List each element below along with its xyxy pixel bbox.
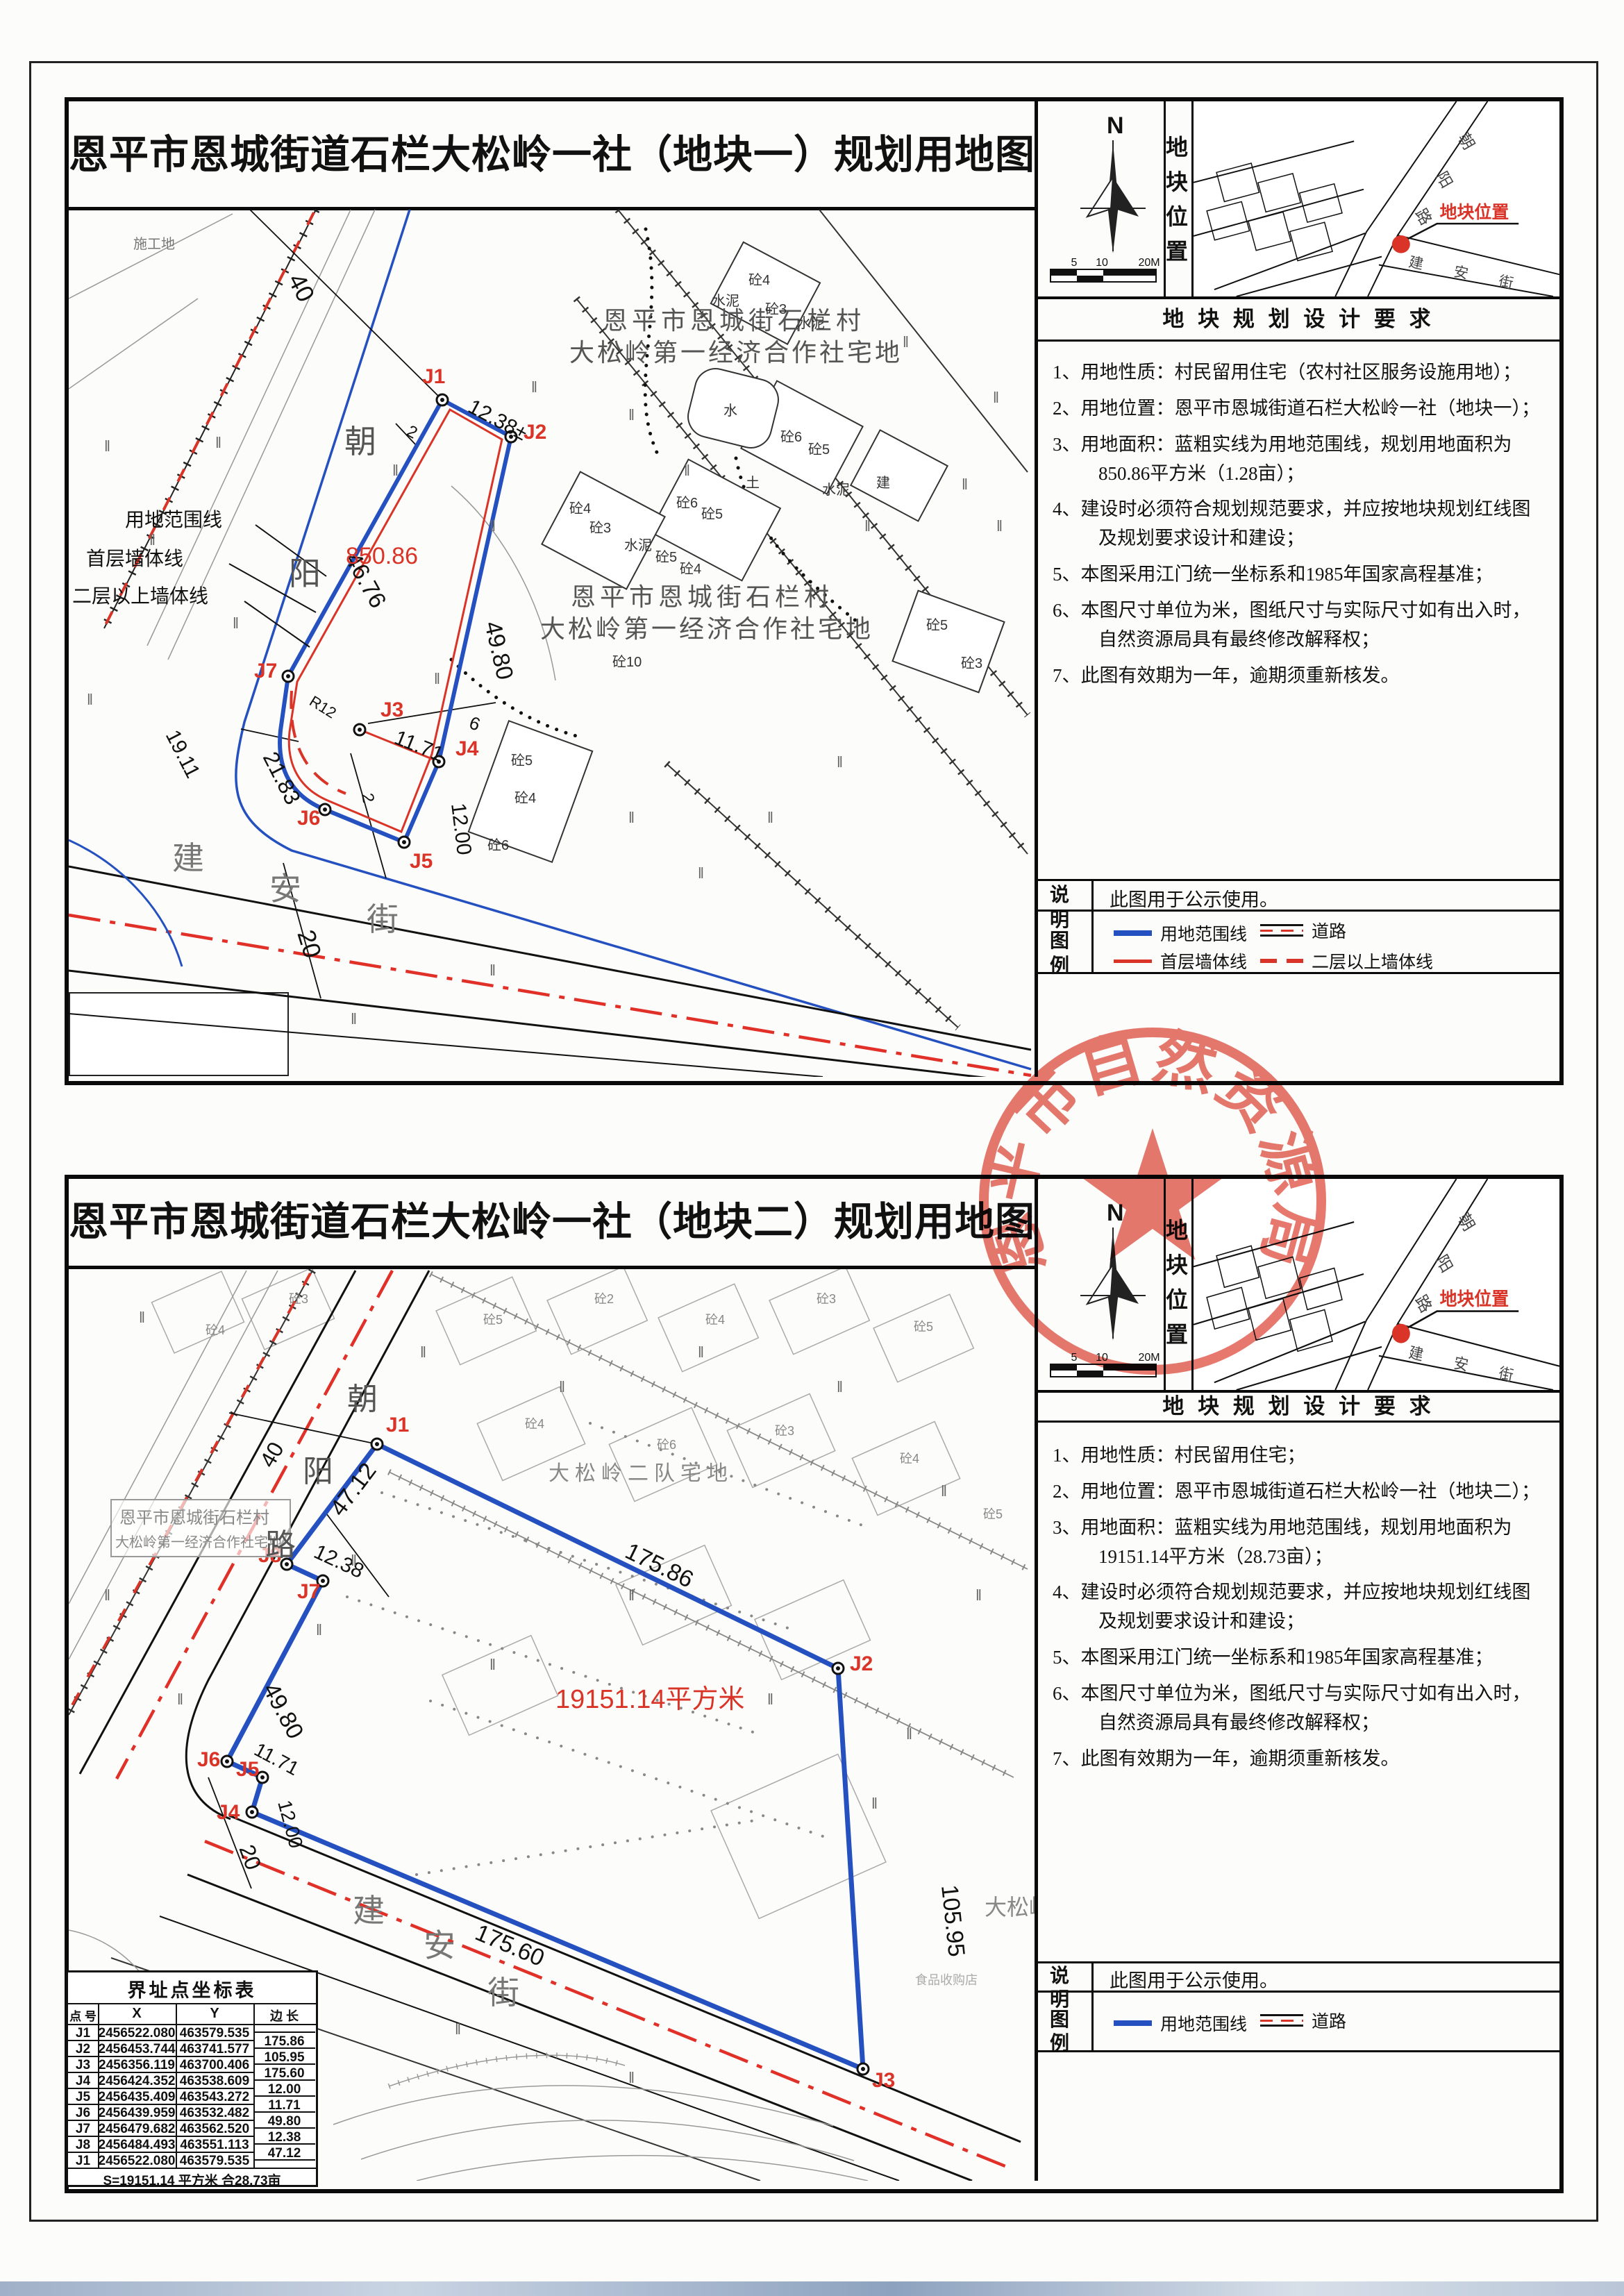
panel1-map: J1 J2 J3 J4 J5 J6 J7 12.38± 46.76 49.80 … — [69, 210, 1035, 1077]
panel2-label-cell-divider — [1091, 1961, 1094, 2052]
svg-text:砼3: 砼3 — [775, 1424, 794, 1438]
svg-text:‖: ‖ — [628, 406, 635, 424]
svg-text:‖: ‖ — [628, 809, 635, 826]
inset-site-label: 地块位置 — [1440, 1288, 1509, 1309]
svg-text:‖: ‖ — [149, 531, 156, 548]
svg-text:J5: J5 — [410, 850, 433, 873]
svg-text:6: 6 — [467, 712, 483, 735]
svg-text:105.95: 105.95 — [936, 1884, 970, 1958]
table-cell: 463579.535 — [176, 2026, 253, 2041]
panel1-inset-map: 地块位置 朝 阳 路 建 安 街 — [1194, 101, 1559, 296]
table-cell: 463543.272 — [176, 2090, 253, 2105]
scale-tick-10: 10 — [1096, 257, 1108, 269]
svg-text:49.80: 49.80 — [479, 619, 518, 682]
table-cell: J1 — [68, 2154, 98, 2169]
svg-text:‖: ‖ — [531, 378, 537, 396]
svg-text:‖: ‖ — [489, 1656, 496, 1673]
svg-text:砼6: 砼6 — [676, 495, 698, 511]
panel2-req-header: 地 块 规 划 设 计 要 求 — [1038, 1393, 1559, 1421]
svg-text:19.11: 19.11 — [161, 726, 204, 782]
svg-text:街: 街 — [487, 1975, 519, 2011]
svg-text:J2: J2 — [850, 1652, 873, 1675]
svg-text:砼2: 砼2 — [594, 1292, 614, 1306]
req-item: 1、用地性质：村民留用住宅； — [1053, 1441, 1548, 1470]
svg-text:大松岭二队宅地: 大松岭二队宅地 — [549, 1462, 733, 1485]
svg-text:J6: J6 — [297, 807, 320, 830]
svg-text:‖: ‖ — [489, 517, 496, 535]
svg-text:‖: ‖ — [434, 670, 440, 687]
svg-text:‖: ‖ — [767, 809, 773, 826]
panel2-legend-bottom-line — [1038, 2050, 1559, 2052]
req-item: 6、本图尺寸单位为米，图纸尺寸与实际尺寸如有出入时，自然资源局具有最终修改解释权… — [1053, 596, 1548, 655]
svg-text:砼4: 砼4 — [206, 1323, 225, 1337]
svg-text:‖: ‖ — [628, 2069, 635, 2086]
svg-text:‖: ‖ — [767, 1691, 773, 1708]
village-box: 恩平市恩城街石栏村 大松岭第一经济合作社宅地 — [111, 1500, 290, 1557]
svg-text:砼4: 砼4 — [705, 1313, 725, 1327]
svg-text:水: 水 — [723, 403, 737, 419]
svg-text:‖: ‖ — [976, 1586, 982, 1604]
svg-text:‖: ‖ — [87, 691, 93, 708]
panel1-scalebar: 5 10 20M — [1045, 255, 1163, 287]
svg-text:‖: ‖ — [177, 1691, 183, 1708]
table-cell: 463538.609 — [176, 2074, 253, 2089]
svg-text:土: 土 — [746, 475, 760, 491]
svg-text:11.71: 11.71 — [391, 726, 446, 766]
svg-text:砼6: 砼6 — [657, 1438, 676, 1452]
svg-text:恩平市恩城街石栏村: 恩平市恩城街石栏村 — [119, 1509, 269, 1527]
table-cell: 463562.520 — [176, 2122, 253, 2137]
svg-text:砼4: 砼4 — [569, 501, 591, 517]
svg-text:‖: ‖ — [941, 1482, 947, 1500]
svg-text:‖: ‖ — [104, 1586, 110, 1604]
svg-text:砼4: 砼4 — [680, 561, 701, 577]
plot2-point-markers — [221, 1439, 869, 2075]
table-cell: J2 — [68, 2042, 98, 2057]
svg-text:大松岭: 大松岭 — [985, 1895, 1035, 1920]
svg-text:砼4: 砼4 — [900, 1452, 919, 1466]
svg-text:J1: J1 — [422, 365, 445, 388]
table-header-y: Y — [176, 2006, 253, 2022]
panel1-compass: N — [1061, 111, 1165, 257]
legend-red-dash-icon — [1260, 959, 1303, 963]
svg-text:朝: 朝 — [344, 424, 376, 460]
svg-text:安: 安 — [424, 1927, 455, 1963]
svg-text:砼5: 砼5 — [983, 1507, 1003, 1521]
legend-item-label: 道路 — [1312, 2008, 1346, 2033]
legend-item-upperwall: 二层以上墙体线 — [1260, 948, 1433, 973]
legend-item-firstfloor: 首层墙体线 — [1114, 948, 1247, 973]
panel1-notes-top-line — [1038, 879, 1559, 881]
table-cell: 2456356.119 — [98, 2058, 176, 2073]
req-item: 2、用地位置：恩平市恩城街道石栏大松岭一社（地块一）； — [1053, 394, 1548, 424]
req-item: 4、建设时必须符合规划规范要求，并应按地块规划红线图及规划要求设计和建设； — [1053, 1578, 1548, 1636]
north-letter: N — [1107, 112, 1124, 139]
svg-text:砼5: 砼5 — [914, 1320, 933, 1334]
svg-text:40: 40 — [255, 1438, 289, 1472]
panel2-reqhdr-bottom-line — [1038, 1421, 1559, 1423]
svg-text:J4: J4 — [455, 737, 479, 760]
legend-item-boundary: 用地范围线 — [1114, 921, 1247, 946]
svg-text:J4: J4 — [217, 1801, 240, 1824]
svg-text:二层以上墙体线: 二层以上墙体线 — [72, 585, 208, 607]
svg-text:用地范围线: 用地范围线 — [125, 509, 222, 530]
panel2-notes-text: 此图用于公示使用。 — [1110, 1966, 1540, 1993]
svg-text:恩平市恩城街石栏村: 恩平市恩城街石栏村 — [603, 306, 865, 335]
svg-text:J7: J7 — [254, 660, 277, 682]
table-cell: 2456522.080 — [98, 2026, 176, 2041]
official-seal: 恩平市自然资源局 — [972, 1021, 1333, 1382]
svg-text:建: 建 — [353, 1893, 385, 1929]
svg-text:施工地: 施工地 — [133, 236, 175, 252]
svg-text:砼4: 砼4 — [514, 790, 536, 806]
plot1-area-label: 850.86 — [346, 543, 418, 569]
req-item: 3、用地面积：蓝粗实线为用地范围线，规划用地面积为850.86平方米（1.28亩… — [1053, 430, 1548, 489]
table-cell: 463551.113 — [176, 2138, 253, 2153]
svg-text:水泥: 水泥 — [797, 315, 825, 331]
legend-blue-line-icon — [1114, 930, 1152, 936]
svg-text:砼6: 砼6 — [487, 837, 509, 853]
table-cell: J7 — [68, 2122, 98, 2137]
req-item: 7、此图有效期为一年，逾期须重新核发。 — [1053, 662, 1548, 691]
legend-item-label: 二层以上墙体线 — [1312, 948, 1433, 973]
req-item: 4、建设时必须符合规划规范要求，并应按地块规划红线图及规划要求设计和建设； — [1053, 495, 1548, 553]
legend-item-road: 道路 — [1260, 2008, 1346, 2033]
village-labels: 恩平市恩城街石栏村 大松岭第一经济合作社宅地 恩平市恩城街石栏村 大松岭第一经济… — [540, 306, 903, 643]
svg-text:大松岭第一经济合作社宅地: 大松岭第一经济合作社宅地 — [115, 1534, 282, 1550]
svg-text:J3: J3 — [380, 698, 403, 721]
svg-text:‖: ‖ — [871, 1795, 878, 1812]
svg-text:砼10: 砼10 — [612, 654, 642, 670]
panel2-req-list: 1、用地性质：村民留用住宅； 2、用地位置：恩平市恩城街道石栏大松岭一社（地块二… — [1053, 1441, 1548, 1955]
table-footer-area: S=19151.14 平方米 合28.73亩 — [68, 2170, 316, 2189]
svg-text:砼5: 砼5 — [511, 753, 533, 769]
boundary-point-coordinate-table: 界址点坐标表 点 号 X Y 边 长 J1 2456522.080 463579… — [66, 1970, 318, 2187]
svg-text:‖: ‖ — [351, 1010, 357, 1028]
legend-item-label: 道路 — [1312, 918, 1346, 943]
table-cell: 463741.577 — [176, 2042, 253, 2057]
table-cell: 2456424.352 — [98, 2074, 176, 2089]
legend-item-boundary: 用地范围线 — [1114, 2011, 1247, 2036]
svg-text:‖: ‖ — [903, 333, 909, 351]
scan-edge-artifact — [0, 2281, 1624, 2296]
svg-text:‖: ‖ — [962, 476, 968, 493]
legend-item-label: 首层墙体线 — [1160, 948, 1247, 973]
table-cell: 463579.535 — [176, 2154, 253, 2169]
svg-text:‖: ‖ — [233, 614, 239, 632]
svg-text:175.60: 175.60 — [471, 1919, 549, 1972]
svg-text:砼3: 砼3 — [817, 1292, 836, 1306]
table-cell: 463700.406 — [176, 2058, 253, 2073]
req-item: 1、用地性质：村民留用住宅（农村社区服务设施用地）； — [1053, 358, 1548, 387]
svg-text:‖: ‖ — [993, 389, 999, 406]
svg-text:‖: ‖ — [351, 1552, 357, 1569]
svg-text:阳: 阳 — [289, 555, 321, 592]
req-item: 7、此图有效期为一年，逾期须重新核发。 — [1053, 1745, 1548, 1774]
panel1-label-cell-divider — [1091, 879, 1094, 974]
svg-text:砼4: 砼4 — [525, 1417, 544, 1431]
panel2-notes-label: 说 明 — [1035, 1965, 1091, 1988]
seal-star-icon — [1083, 1128, 1222, 1260]
legend-item-label: 用地范围线 — [1160, 2011, 1247, 2036]
svg-text:砼3: 砼3 — [589, 520, 611, 536]
svg-text:‖: ‖ — [906, 1725, 912, 1743]
svg-text:49.80: 49.80 — [258, 1679, 309, 1743]
svg-text:水泥: 水泥 — [712, 293, 739, 309]
plot1-dimensions: 12.38± 46.76 49.80 21.83 R12 11.71 12.00… — [161, 269, 531, 962]
svg-text:‖: ‖ — [392, 462, 399, 479]
svg-text:J3: J3 — [872, 2069, 895, 2092]
svg-text:砼5: 砼5 — [701, 506, 723, 522]
svg-text:食品收购店: 食品收购店 — [915, 1973, 978, 1987]
svg-text:‖: ‖ — [628, 1586, 635, 1604]
svg-text:‖: ‖ — [316, 1621, 322, 1639]
svg-text:47.12: 47.12 — [325, 1458, 382, 1521]
svg-text:‖: ‖ — [104, 437, 110, 455]
svg-text:‖: ‖ — [864, 517, 871, 535]
req-item: 6、本图尺寸单位为米，图纸尺寸与实际尺寸如有出入时，自然资源局具有最终修改解释权… — [1053, 1679, 1548, 1738]
plot2-boundary-blue — [227, 1444, 863, 2069]
panel1-req-list: 1、用地性质：村民留用住宅（农村社区服务设施用地）； 2、用地位置：恩平市恩城街… — [1053, 358, 1548, 872]
table-cell: J3 — [68, 2058, 98, 2073]
svg-text:‖: ‖ — [837, 753, 843, 771]
panel1-notes-label: 说 明 — [1035, 883, 1091, 908]
svg-text:‖: ‖ — [698, 864, 704, 882]
svg-text:‖: ‖ — [996, 517, 1003, 535]
svg-text:J5: J5 — [236, 1758, 259, 1781]
street-names: 朝 阳 路 建 安 街 — [265, 1382, 519, 2011]
scale-tick-5: 5 — [1071, 257, 1078, 269]
legend-blue-line-icon — [1114, 2020, 1152, 2026]
table-cell: 2456522.080 — [98, 2154, 176, 2169]
legend-red-line-icon — [1114, 960, 1152, 963]
svg-text:‖: ‖ — [455, 2020, 461, 2038]
svg-text:砼5: 砼5 — [808, 442, 830, 458]
table-cell: J5 — [68, 2090, 98, 2105]
table-cell: 2456439.959 — [98, 2106, 176, 2121]
table-cell: 2456435.409 — [98, 2090, 176, 2105]
table-cell: 2456484.493 — [98, 2138, 176, 2153]
svg-text:路: 路 — [265, 1528, 296, 1562]
svg-text:大松岭第一经济合作社宅地: 大松岭第一经济合作社宅地 — [569, 338, 903, 367]
table-cell: 2456479.682 — [98, 2122, 176, 2137]
req-item: 5、本图采用江门统一坐标系和1985年国家高程基准； — [1053, 560, 1548, 589]
panel1-reqhdr-bottom-line — [1038, 340, 1559, 342]
site-labels: 施工地 施工地 — [133, 210, 178, 252]
inset-site-label: 地块位置 — [1440, 202, 1509, 222]
svg-text:‖: ‖ — [215, 434, 221, 451]
inset-site-marker — [1392, 235, 1410, 253]
panel2-title: 恩平市恩城街道石栏大松岭一社（地块二）规划用地图 — [69, 1179, 1035, 1266]
svg-text:‖: ‖ — [837, 1378, 843, 1396]
svg-text:朝: 朝 — [347, 1382, 378, 1416]
svg-text:恩平市恩城街石栏村: 恩平市恩城街石栏村 — [571, 583, 833, 611]
table-header-x: X — [98, 2006, 176, 2022]
svg-text:砼6: 砼6 — [780, 429, 802, 445]
svg-text:R12: R12 — [306, 692, 339, 722]
svg-text:砼4: 砼4 — [748, 272, 770, 288]
svg-text:阳: 阳 — [303, 1455, 333, 1489]
svg-text:砼5: 砼5 — [655, 549, 677, 565]
svg-text:砼3: 砼3 — [765, 301, 787, 317]
legend-item-label: 用地范围线 — [1160, 921, 1247, 946]
legend-road-icon — [1260, 2014, 1303, 2027]
legend-road-icon — [1260, 924, 1303, 937]
svg-text:建: 建 — [172, 840, 204, 876]
table-header-length: 边 长 — [253, 2006, 315, 2025]
svg-text:砼5: 砼5 — [483, 1313, 503, 1327]
svg-text:建: 建 — [876, 475, 890, 491]
req-item: 2、用地位置：恩平市恩城街道石栏大松岭一社（地块二）； — [1053, 1477, 1548, 1507]
table-cell: J4 — [68, 2074, 98, 2089]
panel1-req-header: 地 块 规 划 设 计 要 求 — [1038, 299, 1559, 340]
req-item: 5、本图采用江门统一坐标系和1985年国家高程基准； — [1053, 1643, 1548, 1673]
plot2-area-label: 19151.14平方米 — [555, 1685, 745, 1714]
svg-text:砼5: 砼5 — [926, 617, 948, 633]
svg-text:J1: J1 — [386, 1414, 409, 1436]
legend-item-road: 道路 — [1260, 918, 1346, 943]
svg-text:街: 街 — [367, 901, 399, 937]
dot-rows — [347, 1423, 868, 1875]
panel2-notes-top-line — [1038, 1961, 1559, 1963]
svg-text:J7: J7 — [297, 1580, 320, 1603]
svg-text:安: 安 — [269, 871, 301, 907]
table-title: 界址点坐标表 — [68, 1975, 316, 2002]
table-cell: J1 — [68, 2026, 98, 2041]
table-cell: 2456453.744 — [98, 2042, 176, 2057]
svg-text:大松岭第一经济合作社宅地: 大松岭第一经济合作社宅地 — [540, 614, 873, 643]
svg-text:砼3: 砼3 — [961, 655, 982, 671]
panel1-notes-text: 此图用于公示使用。 — [1110, 885, 1540, 912]
inset-site-marker — [1392, 1324, 1410, 1343]
svg-text:水泥: 水泥 — [822, 482, 850, 498]
svg-text:20: 20 — [234, 1841, 266, 1873]
panel1-legend-label: 图 例 — [1035, 929, 1091, 954]
req-item: 3、用地面积：蓝粗实线为用地范围线，规划用地面积为19151.14平方米（28.… — [1053, 1514, 1548, 1572]
svg-text:‖: ‖ — [489, 962, 496, 979]
panel1-title: 恩平市恩城街道石栏大松岭一社（地块一）规划用地图 — [69, 101, 1035, 210]
svg-text:首层墙体线: 首层墙体线 — [86, 548, 183, 569]
panel2-legend-label: 图 例 — [1035, 2009, 1091, 2032]
svg-text:‖: ‖ — [420, 1343, 426, 1361]
scale-tick-20m: 20M — [1138, 257, 1160, 269]
svg-text:‖: ‖ — [684, 462, 690, 479]
table-header-point: 点 号 — [68, 2006, 98, 2024]
svg-text:‖: ‖ — [139, 1309, 145, 1326]
svg-text:水泥: 水泥 — [624, 537, 652, 553]
panel1-location-strip-label: 地块位置 — [1165, 125, 1191, 285]
table-cell: 463532.482 — [176, 2106, 253, 2121]
table-cell: J8 — [68, 2138, 98, 2153]
svg-text:砼3: 砼3 — [289, 1292, 308, 1306]
svg-text:2: 2 — [358, 791, 378, 804]
svg-text:‖: ‖ — [559, 1378, 565, 1396]
svg-text:‖: ‖ — [698, 1343, 704, 1361]
scanned-planning-sheet: 恩平市恩城街道石栏大松岭一社（地块一）规划用地图 N 5 10 20M 地块位置 — [0, 0, 1624, 2296]
table-cell: J6 — [68, 2106, 98, 2121]
svg-text:175.86: 175.86 — [621, 1538, 697, 1593]
svg-text:12.00: 12.00 — [446, 802, 476, 857]
svg-text:J6: J6 — [197, 1748, 220, 1771]
